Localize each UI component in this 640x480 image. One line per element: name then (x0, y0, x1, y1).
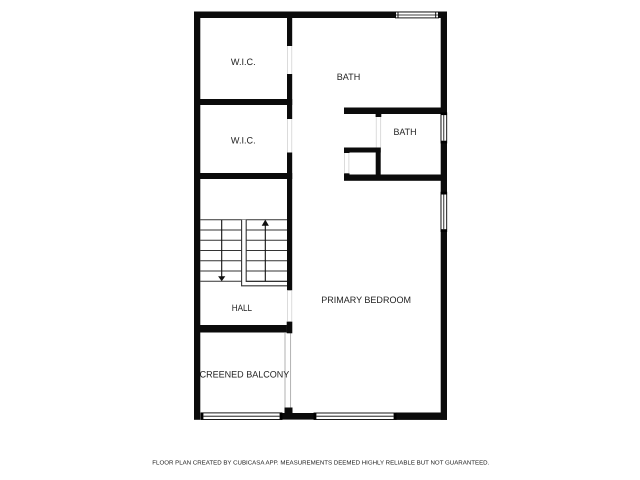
svg-text:FLOOR PLAN CREATED BY CUBICASA: FLOOR PLAN CREATED BY CUBICASA APP. MEAS… (152, 460, 489, 467)
svg-text:W.I.C.: W.I.C. (231, 57, 256, 67)
svg-text:SCREENED BALCONY: SCREENED BALCONY (194, 370, 290, 380)
svg-text:BATH: BATH (337, 72, 361, 82)
svg-text:W.I.C.: W.I.C. (231, 136, 256, 146)
svg-text:PRIMARY BEDROOM: PRIMARY BEDROOM (321, 295, 411, 305)
svg-text:HALL: HALL (232, 303, 252, 313)
svg-text:BATH: BATH (393, 127, 416, 137)
